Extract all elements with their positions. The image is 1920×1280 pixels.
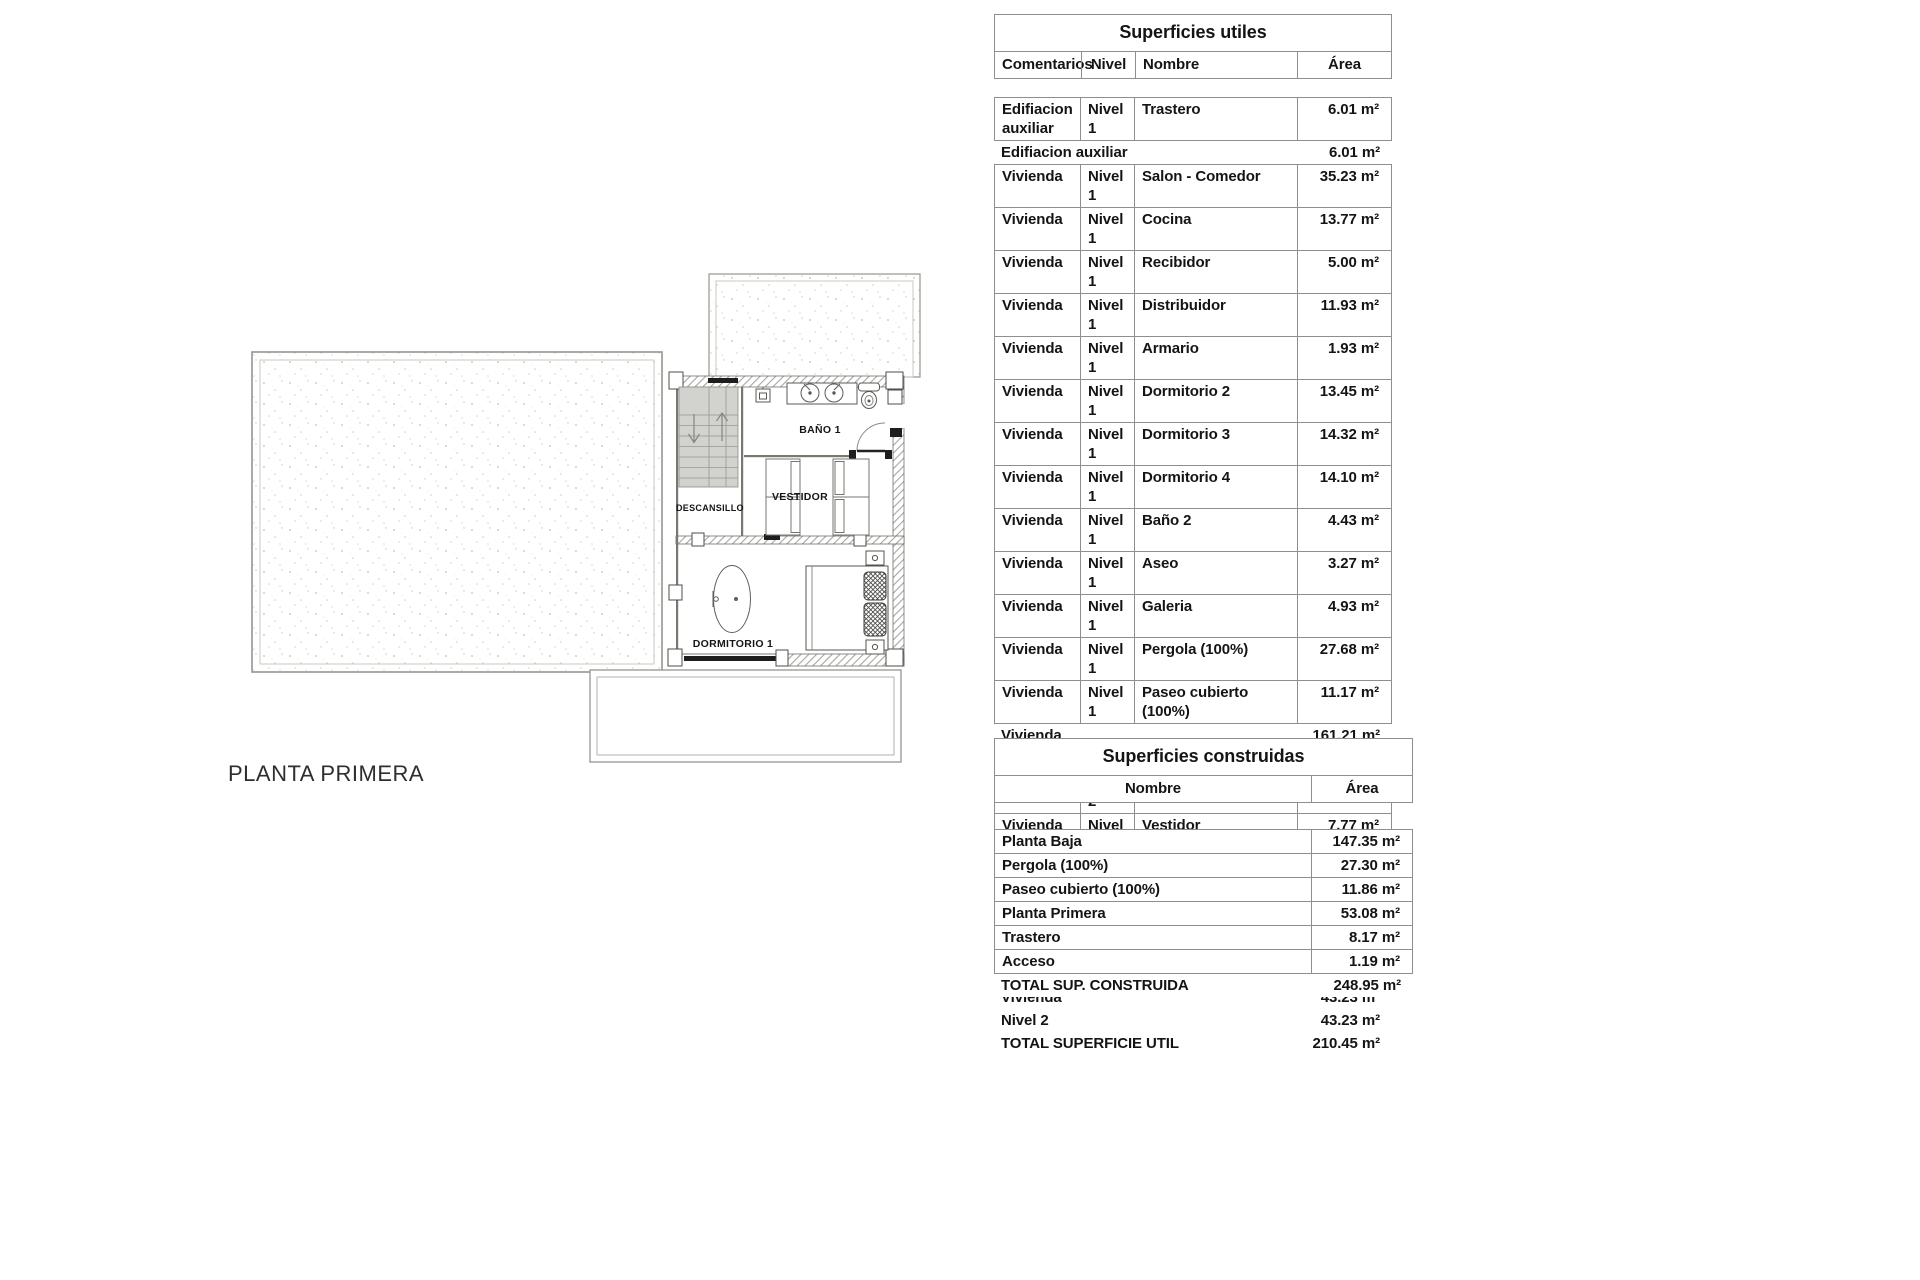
table-row: Planta Primera 53.08 m² 53.08 m² [994, 901, 1413, 926]
cell-comentarios: Vivienda [995, 294, 1080, 336]
cell-comentarios: Vivienda [995, 380, 1080, 422]
cell-area: 35.23 m² [1297, 165, 1391, 207]
column-header-nombre: Nombre [1135, 52, 1297, 78]
table-body: Planta Baja 147.35 m² 147.35 m² Pergola … [994, 829, 1413, 997]
stairs [679, 387, 738, 487]
room-label-bano-1: BAÑO 1 [778, 424, 862, 436]
table-row: Pergola (100%) 27.30 m² 27.30 m² [994, 853, 1413, 878]
column-header-comentarios: Comentarios [995, 52, 1081, 78]
cell-nivel: Nivel 1 [1080, 380, 1134, 422]
cell-nombre: Cocina [1134, 208, 1297, 250]
cell-nivel: Nivel 1 [1080, 552, 1134, 594]
table-row: Vivienda Nivel 1 Cocina 13.77 m² 13.77 m… [994, 207, 1392, 251]
summary-label: Nivel 2 [994, 1009, 1298, 1032]
room-label-dormitorio-1: DORMITORIO 1 [682, 638, 784, 650]
cell-area: 4.93 m² [1297, 595, 1391, 637]
cell-nivel: Nivel 1 [1080, 337, 1134, 379]
cell-comentarios: Vivienda [995, 251, 1080, 293]
table-row: Paseo cubierto (100%) 11.86 m² 11.86 m² [994, 877, 1413, 902]
cell-nombre: Paseo cubierto (100%) [1134, 681, 1297, 723]
table-row: Vivienda Nivel 1 Salon - Comedor 35.23 m… [994, 164, 1392, 208]
column-header-nombre: Nombre [995, 776, 1311, 802]
cell-nombre: Distribuidor [1134, 294, 1297, 336]
cell-nombre: Galeria [1134, 595, 1297, 637]
cell-nivel: Nivel 1 [1080, 294, 1134, 336]
cell-nivel: Nivel 1 [1080, 509, 1134, 551]
cell-nombre: Salon - Comedor [1134, 165, 1297, 207]
table-row: Planta Baja 147.35 m² 147.35 m² [994, 829, 1413, 854]
cell-area: 3.27 m² [1297, 552, 1391, 594]
terrace-area [252, 352, 662, 672]
balcony-outline [590, 670, 901, 762]
cell-area: 6.01 m² [1297, 98, 1391, 140]
pillow [864, 603, 886, 636]
table-row: Trastero 8.17 m² 8.17 m² [994, 925, 1413, 950]
cell-area: 27.30 m² [1311, 854, 1412, 877]
summary-area: 210.45 m² [1298, 1032, 1392, 1055]
cell-area: 4.43 m² [1297, 509, 1391, 551]
superficies-construidas-table: Superficies construidas Nombre Área Plan… [994, 738, 1413, 997]
column-header-nivel: Nivel [1081, 52, 1135, 78]
cell-nivel: Nivel 1 [1080, 165, 1134, 207]
cell-area: 14.32 m² [1297, 423, 1391, 465]
cell-nombre: Planta Baja [995, 830, 1311, 853]
summary-area: 43.23 m² [1298, 1009, 1392, 1032]
upper-patio-area [709, 274, 920, 377]
cell-comentarios: Vivienda [995, 337, 1080, 379]
cell-area: 27.68 m² [1297, 638, 1391, 680]
cell-area: 8.17 m² [1311, 926, 1412, 949]
table-row: Vivienda Nivel 1 Dormitorio 2 13.45 m² 1… [994, 379, 1392, 423]
cell-nombre: Aseo [1134, 552, 1297, 594]
cell-area: 14.10 m² [1297, 466, 1391, 508]
table-row: Vivienda Nivel 1 Distribuidor 11.93 m² 1… [994, 293, 1392, 337]
duct-shaft [756, 387, 770, 402]
table-row: 210.45 m² TOTAL SUPERFICIE UTIL 210.45 m… [994, 1032, 1392, 1055]
room-label-descansillo: DESCANSILLO [676, 503, 740, 513]
table-row: 43.23 m² Nivel 2 43.23 m² [994, 1009, 1392, 1032]
cell-nombre: Paseo cubierto (100%) [995, 878, 1311, 901]
column-header-area: Área [1311, 776, 1412, 802]
table-row: Vivienda Nivel 1 Dormitorio 3 14.32 m² 1… [994, 422, 1392, 466]
cell-area: 13.77 m² [1297, 208, 1391, 250]
table-title: Superficies utiles [995, 15, 1391, 52]
cell-nivel: Nivel 1 [1080, 251, 1134, 293]
cell-nombre: Acceso [995, 950, 1311, 973]
cell-nivel: Nivel 1 [1080, 595, 1134, 637]
cell-area: 5.00 m² [1297, 251, 1391, 293]
table-row: Vivienda Nivel 1 Paseo cubierto (100%) 1… [994, 680, 1392, 724]
cell-area: 1.19 m² [1311, 950, 1412, 973]
cell-area: 13.45 m² [1297, 380, 1391, 422]
cell-comentarios: Vivienda [995, 552, 1080, 594]
cell-nombre: Dormitorio 3 [1134, 423, 1297, 465]
table-row: Edifiacion auxiliar Nivel 1 Trastero 6.0… [994, 97, 1392, 141]
table-row: Vivienda Nivel 1 Pergola (100%) 27.68 m²… [994, 637, 1392, 681]
cell-comentarios: Vivienda [995, 681, 1080, 723]
window-gap [892, 404, 906, 428]
cell-nombre: Baño 2 [1134, 509, 1297, 551]
cell-nivel: Nivel 1 [1080, 466, 1134, 508]
table-row: Vivienda Nivel 1 Recibidor 5.00 m² 5.00 … [994, 250, 1392, 294]
cell-area: 147.35 m² [1311, 830, 1412, 853]
cell-comentarios: Edifiacion auxiliar [995, 98, 1080, 140]
cell-nivel: Nivel 1 [1080, 423, 1134, 465]
double-sink [787, 383, 857, 404]
cell-area: 53.08 m² [1311, 902, 1412, 925]
cell-comentarios: Vivienda [995, 208, 1080, 250]
cell-comentarios: Vivienda [995, 423, 1080, 465]
table-header: Superficies construidas Nombre Área [994, 738, 1413, 803]
cell-area: 11.93 m² [1297, 294, 1391, 336]
plan-caption: PLANTA PRIMERA [228, 761, 424, 787]
cell-nombre: Planta Primera [995, 902, 1311, 925]
table-row: 6.01 m² Edifiacion auxiliar 6.01 m² [994, 141, 1392, 164]
cell-area: 1.93 m² [1297, 337, 1391, 379]
room-label-vestidor: VESTIDOR [758, 491, 842, 503]
cell-area: 11.17 m² [1297, 681, 1391, 723]
floor-plan-drawing [0, 0, 1920, 1280]
cell-nombre: Pergola (100%) [995, 854, 1311, 877]
table-row: Vivienda Nivel 1 Aseo 3.27 m² 3.27 m² [994, 551, 1392, 595]
table-header: Superficies utiles Comentarios Nivel Nom… [994, 14, 1392, 79]
cell-nivel: Nivel 1 [1080, 208, 1134, 250]
bed [806, 551, 888, 654]
summary-label: Edifiacion auxiliar [994, 141, 1298, 164]
column-header-area: Área [1297, 52, 1391, 78]
table-row: Vivienda Nivel 1 Galeria 4.93 m² 4.93 m² [994, 594, 1392, 638]
table-row: Vivienda Nivel 1 Armario 1.93 m² 1.93 m² [994, 336, 1392, 380]
cell-comentarios: Vivienda [995, 509, 1080, 551]
cell-nombre: Armario [1134, 337, 1297, 379]
cell-nivel: Nivel 1 [1080, 98, 1134, 140]
drawing-sheet: DESCANSILLO BAÑO 1 VESTIDOR DORMITORIO 1… [0, 0, 1920, 1280]
cell-nombre: Trastero [1134, 98, 1297, 140]
cell-comentarios: Vivienda [995, 595, 1080, 637]
summary-area: 248.95 m² [1312, 974, 1413, 997]
bathtub [713, 566, 751, 633]
cell-nombre: Dormitorio 2 [1134, 380, 1297, 422]
cell-nombre: Dormitorio 4 [1134, 466, 1297, 508]
table-row: Vivienda Nivel 1 Dormitorio 4 14.10 m² 1… [994, 465, 1392, 509]
cell-nivel: Nivel 1 [1080, 681, 1134, 723]
cell-nivel: Nivel 1 [1080, 638, 1134, 680]
cell-comentarios: Vivienda [995, 638, 1080, 680]
summary-area: 6.01 m² [1298, 141, 1392, 164]
summary-label: TOTAL SUPERFICIE UTIL [994, 1032, 1298, 1055]
pillow [864, 572, 886, 600]
cell-comentarios: Vivienda [995, 466, 1080, 508]
table-row: Vivienda Nivel 1 Baño 2 4.43 m² 4.43 m² [994, 508, 1392, 552]
summary-label: TOTAL SUP. CONSTRUIDA [994, 974, 1312, 997]
table-title: Superficies construidas [995, 739, 1412, 776]
table-row: Acceso 1.19 m² 1.19 m² [994, 949, 1413, 974]
cell-area: 11.86 m² [1311, 878, 1412, 901]
cell-comentarios: Vivienda [995, 165, 1080, 207]
cell-nombre: Trastero [995, 926, 1311, 949]
cell-nombre: Recibidor [1134, 251, 1297, 293]
table-row: 248.95 m² TOTAL SUP. CONSTRUIDA 248.95 m… [994, 974, 1413, 997]
cell-nombre: Pergola (100%) [1134, 638, 1297, 680]
